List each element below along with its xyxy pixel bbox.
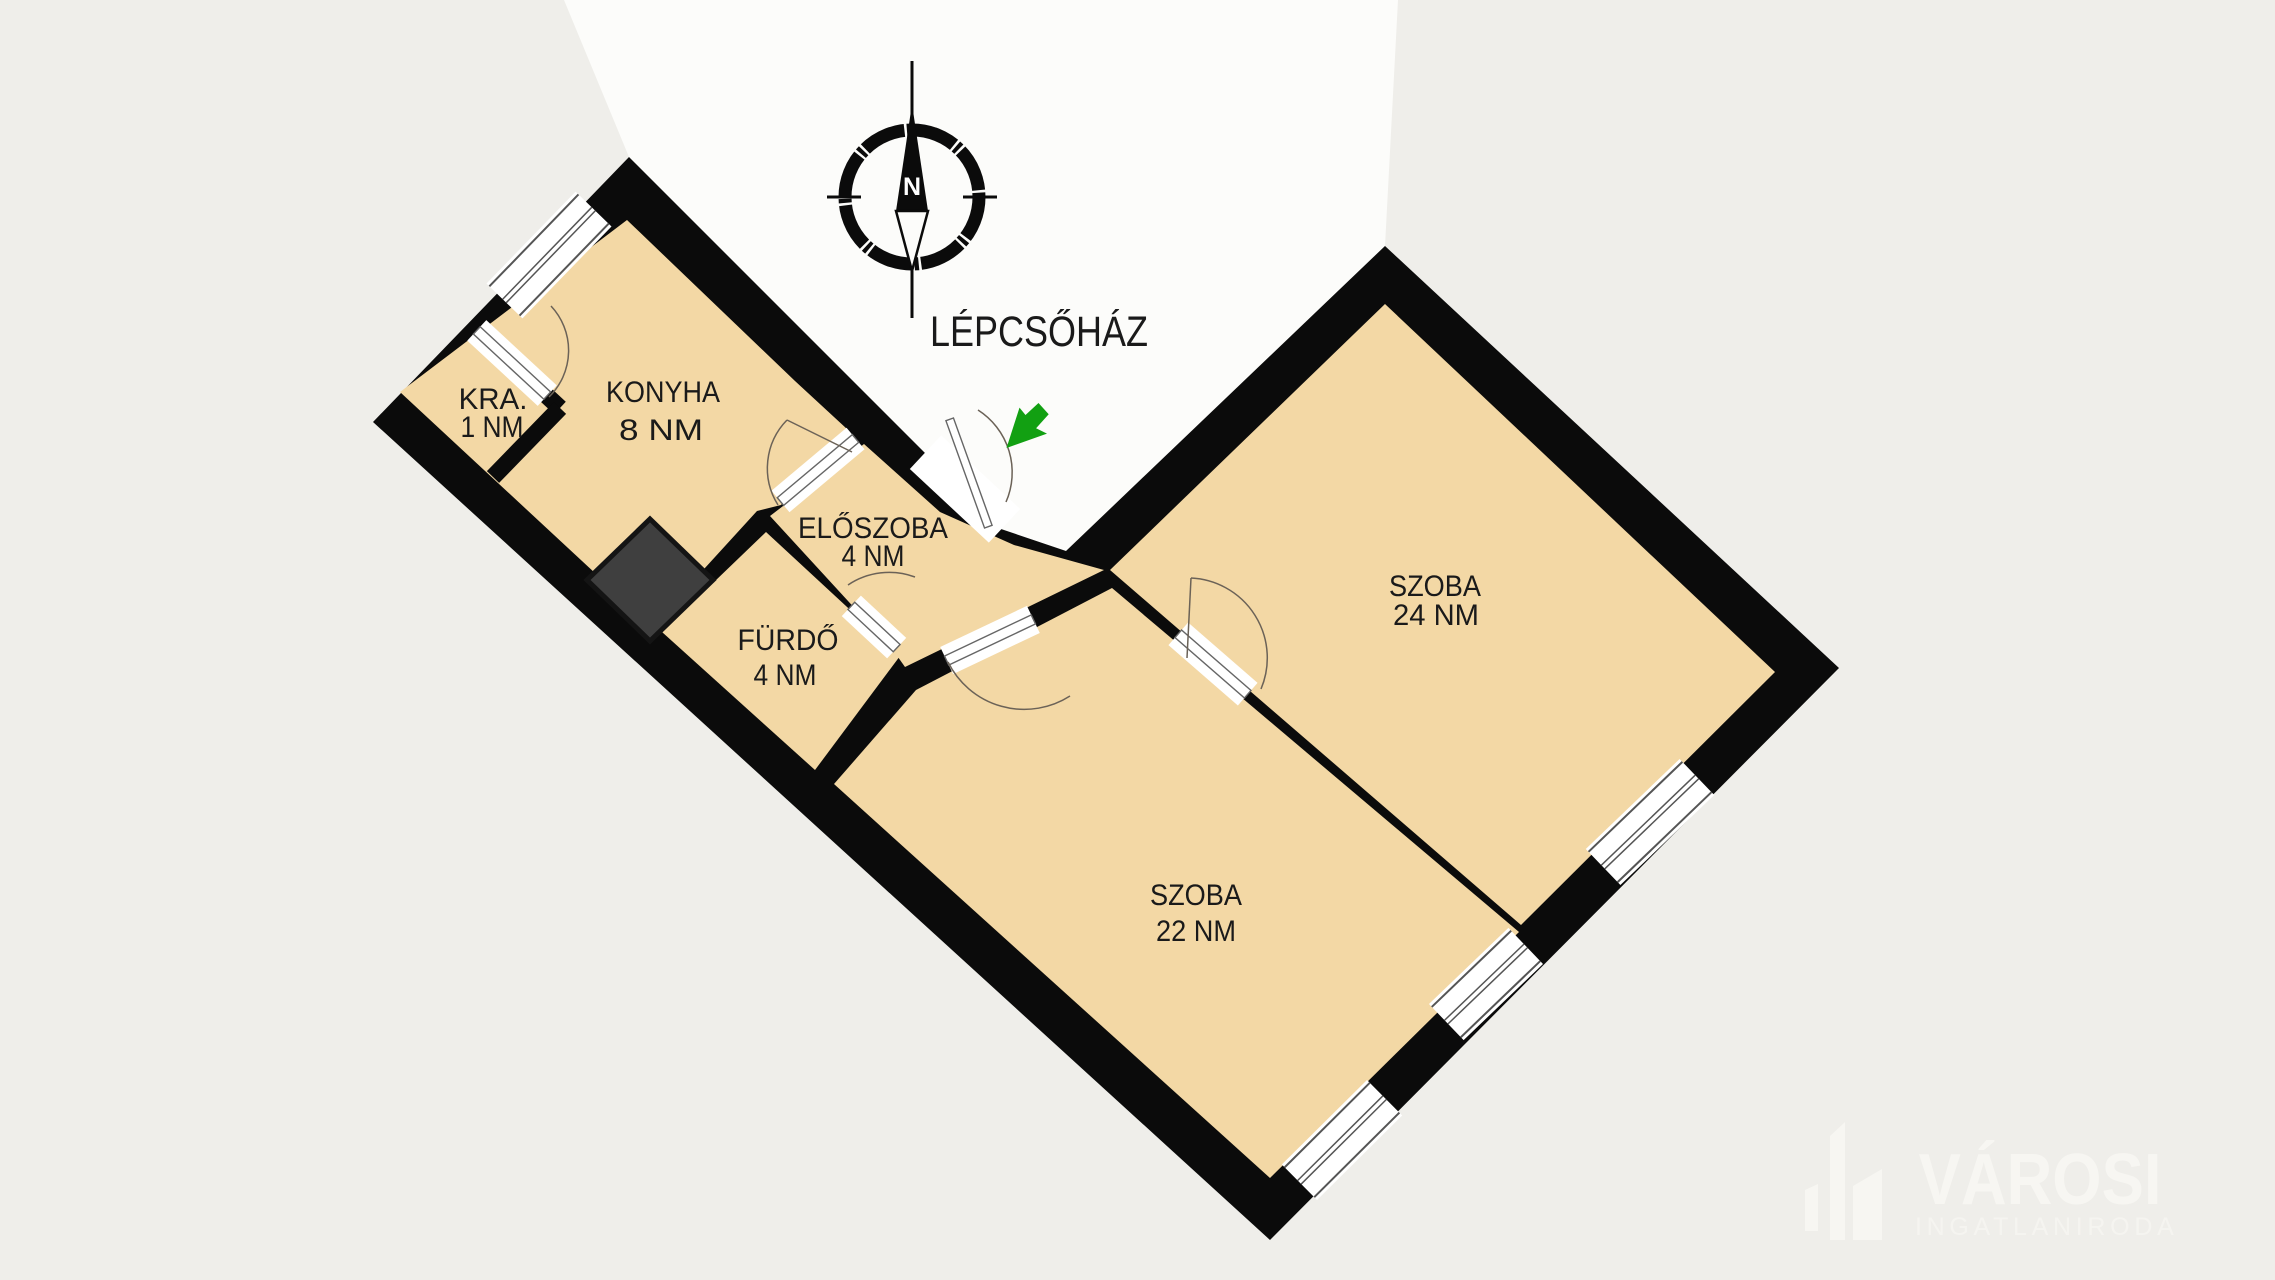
svg-text:SZOBA: SZOBA: [1150, 879, 1242, 912]
svg-text:1 NM: 1 NM: [461, 411, 524, 444]
svg-text:4 NM: 4 NM: [842, 540, 905, 573]
svg-text:4 NM: 4 NM: [754, 659, 817, 692]
svg-text:24 NM: 24 NM: [1393, 599, 1479, 632]
svg-text:LÉPCSŐHÁZ: LÉPCSŐHÁZ: [930, 308, 1148, 356]
svg-text:N: N: [903, 173, 921, 201]
svg-text:KONYHA: KONYHA: [606, 376, 720, 409]
svg-text:FÜRDŐ: FÜRDŐ: [738, 624, 839, 657]
svg-text:VÁROSI: VÁROSI: [1919, 1139, 2162, 1220]
svg-text:8 NM: 8 NM: [619, 414, 703, 447]
svg-text:22 NM: 22 NM: [1156, 915, 1236, 948]
svg-text:INGATLANIRODA: INGATLANIRODA: [1915, 1213, 2178, 1241]
